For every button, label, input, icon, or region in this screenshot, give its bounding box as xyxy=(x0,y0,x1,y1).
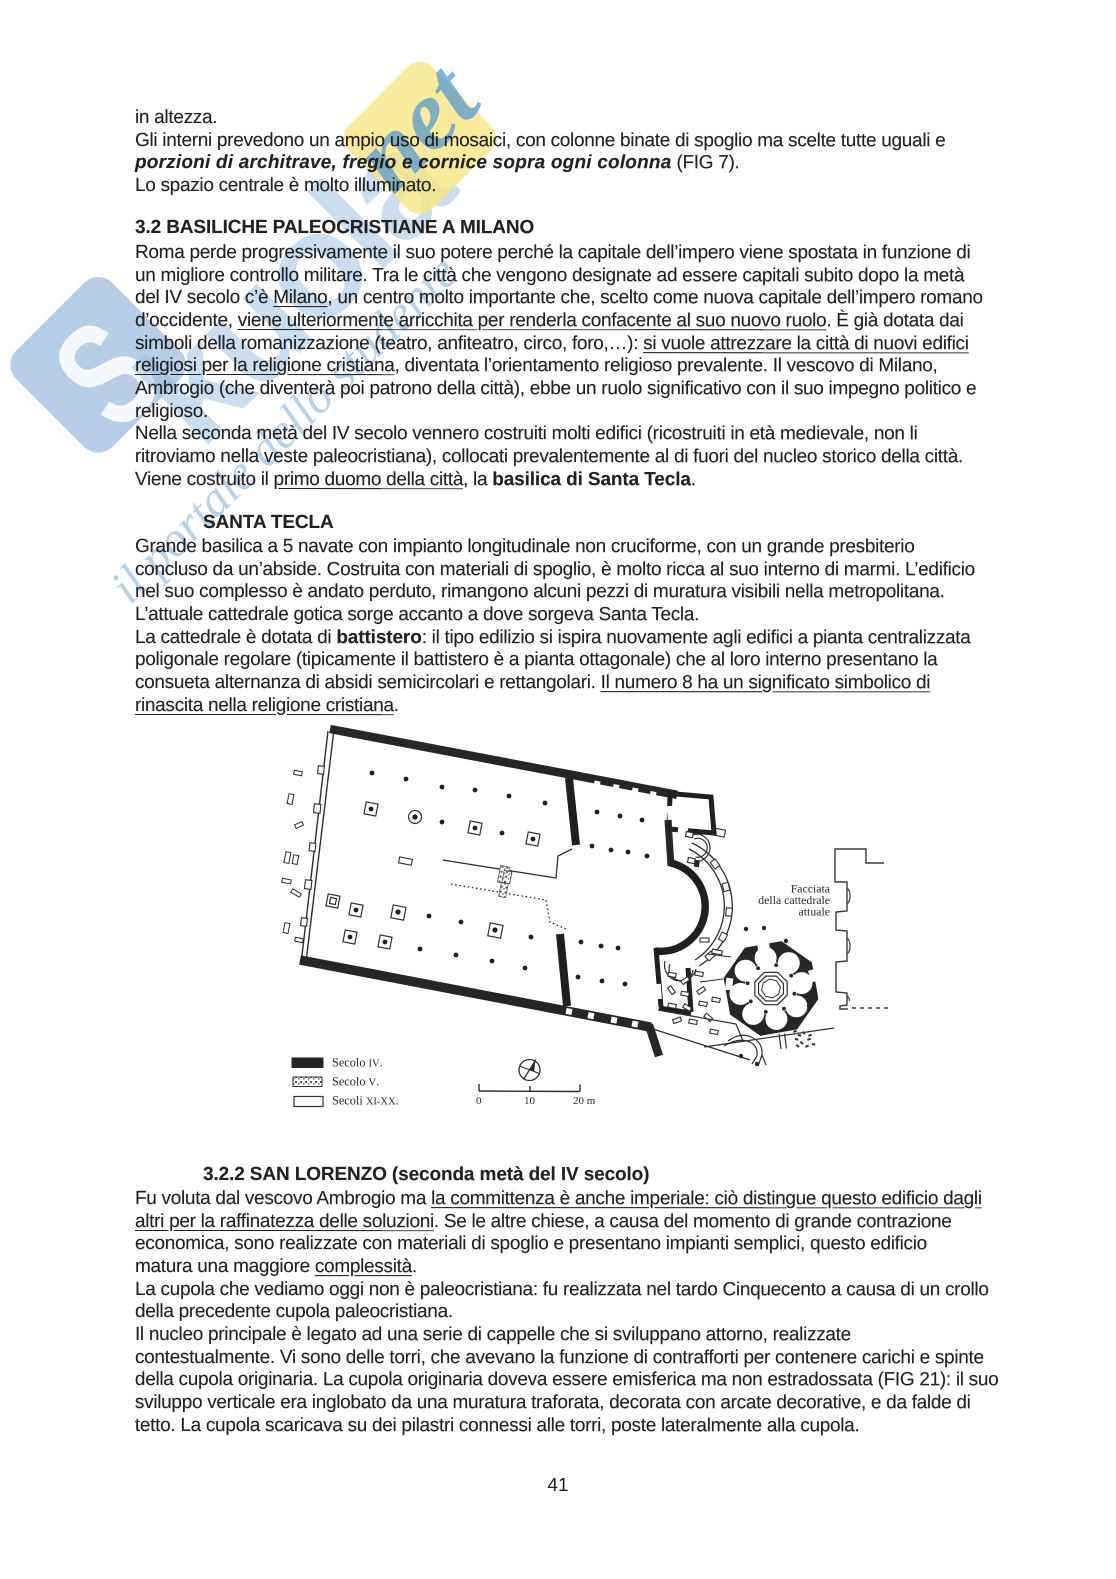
svg-text:20 m: 20 m xyxy=(573,1095,596,1107)
svg-text:Secolo V.: Secolo V. xyxy=(332,1075,379,1089)
svg-text:attuale: attuale xyxy=(799,905,830,919)
svg-text:Secoli XI-XX.: Secoli XI-XX. xyxy=(332,1094,399,1108)
svg-text:10: 10 xyxy=(524,1095,536,1107)
svg-text:Secolo IV.: Secolo IV. xyxy=(332,1056,383,1070)
svg-text:0: 0 xyxy=(476,1095,482,1107)
